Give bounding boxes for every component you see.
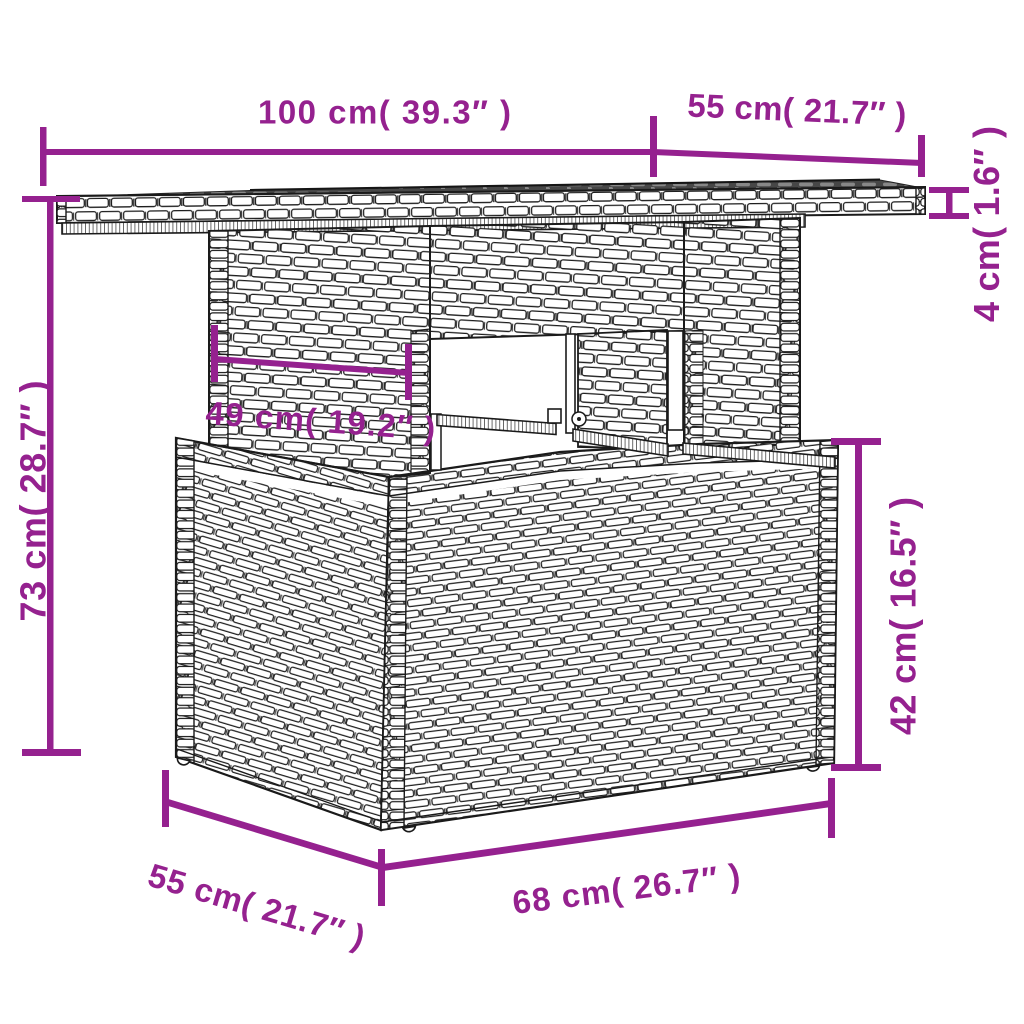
svg-text:100 cm( 39.3″ ): 100 cm( 39.3″ ) <box>258 94 511 131</box>
svg-text:42 cm( 16.5″ ): 42 cm( 16.5″ ) <box>883 497 924 735</box>
svg-text:73 cm( 28.7″ ): 73 cm( 28.7″ ) <box>13 381 54 622</box>
svg-text:4 cm( 1.6″ ): 4 cm( 1.6″ ) <box>966 126 1007 322</box>
